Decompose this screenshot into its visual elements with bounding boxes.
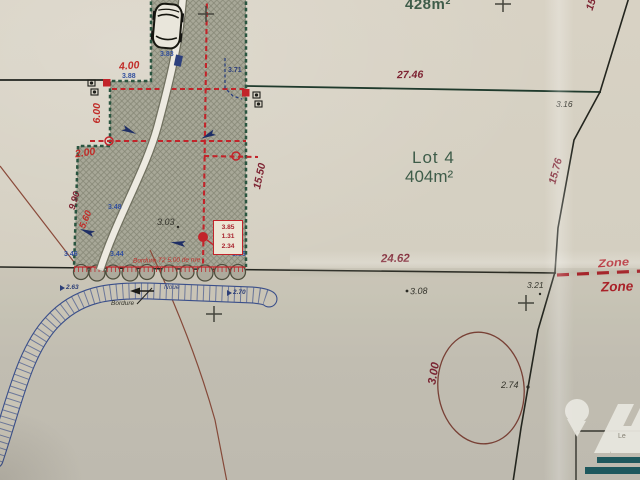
- bordure-note-black: Bordure: [111, 301, 134, 308]
- swale-band: [0, 285, 269, 460]
- zone-label-upper: Zone: [598, 256, 630, 269]
- spot-2-74: 2.74: [501, 381, 519, 390]
- zone-dashed-line: [557, 271, 640, 275]
- lot4-area: 404m²: [405, 168, 453, 185]
- spot-3-46: 3.46: [64, 251, 78, 258]
- spot-3-21: 3.21: [527, 281, 544, 290]
- dim-2-00: 2.00: [74, 147, 96, 160]
- zone-label-lower: Zone: [601, 279, 634, 294]
- spot-2-63: 2.63: [66, 285, 79, 292]
- dim-4-00: 4.00: [119, 60, 140, 72]
- refbox-value-2: 1.31: [222, 233, 235, 242]
- watermark-text: Le: [618, 433, 626, 440]
- cadastral-plan-photo: Le 428m² 27.46 3.16 Lot 4 404m² 15.76 15…: [0, 0, 640, 480]
- dim-6-00: 6.00: [92, 94, 103, 132]
- noue-label: Noue: [164, 285, 180, 292]
- spot-3-44: 3.44: [110, 251, 124, 258]
- reference-value-box: 3.85 1.31 2.34: [213, 220, 243, 255]
- car-icon: [150, 3, 185, 50]
- plan-linework: Le: [0, 0, 640, 480]
- grid-crosses: [198, 0, 534, 322]
- level-flag-icon: [60, 285, 65, 291]
- dim-27-46: 27.46: [397, 70, 423, 81]
- spot-2-70: 2.70: [233, 290, 246, 297]
- spot-3-71: 3.71: [228, 67, 242, 74]
- bordure-note-red: Bordure T2 5.00 de rue: [133, 257, 200, 265]
- dim-24-62: 24.62: [381, 254, 410, 266]
- area-top-label: 428m²: [405, 0, 451, 12]
- spot-3-48: 3.48: [108, 204, 122, 211]
- spot-3-03: 3.03: [157, 218, 175, 227]
- refbox-value-3: 2.34: [222, 243, 235, 252]
- spot-3-83: 3.83: [160, 51, 174, 58]
- lot4-name: Lot 4: [412, 149, 455, 166]
- watermark-logo: Le: [565, 399, 640, 480]
- spot-3-16: 3.16: [556, 100, 573, 109]
- spot-3-88: 3.88: [122, 73, 136, 80]
- spot-3-08: 3.08: [410, 287, 428, 297]
- refbox-value-1: 3.85: [222, 224, 235, 233]
